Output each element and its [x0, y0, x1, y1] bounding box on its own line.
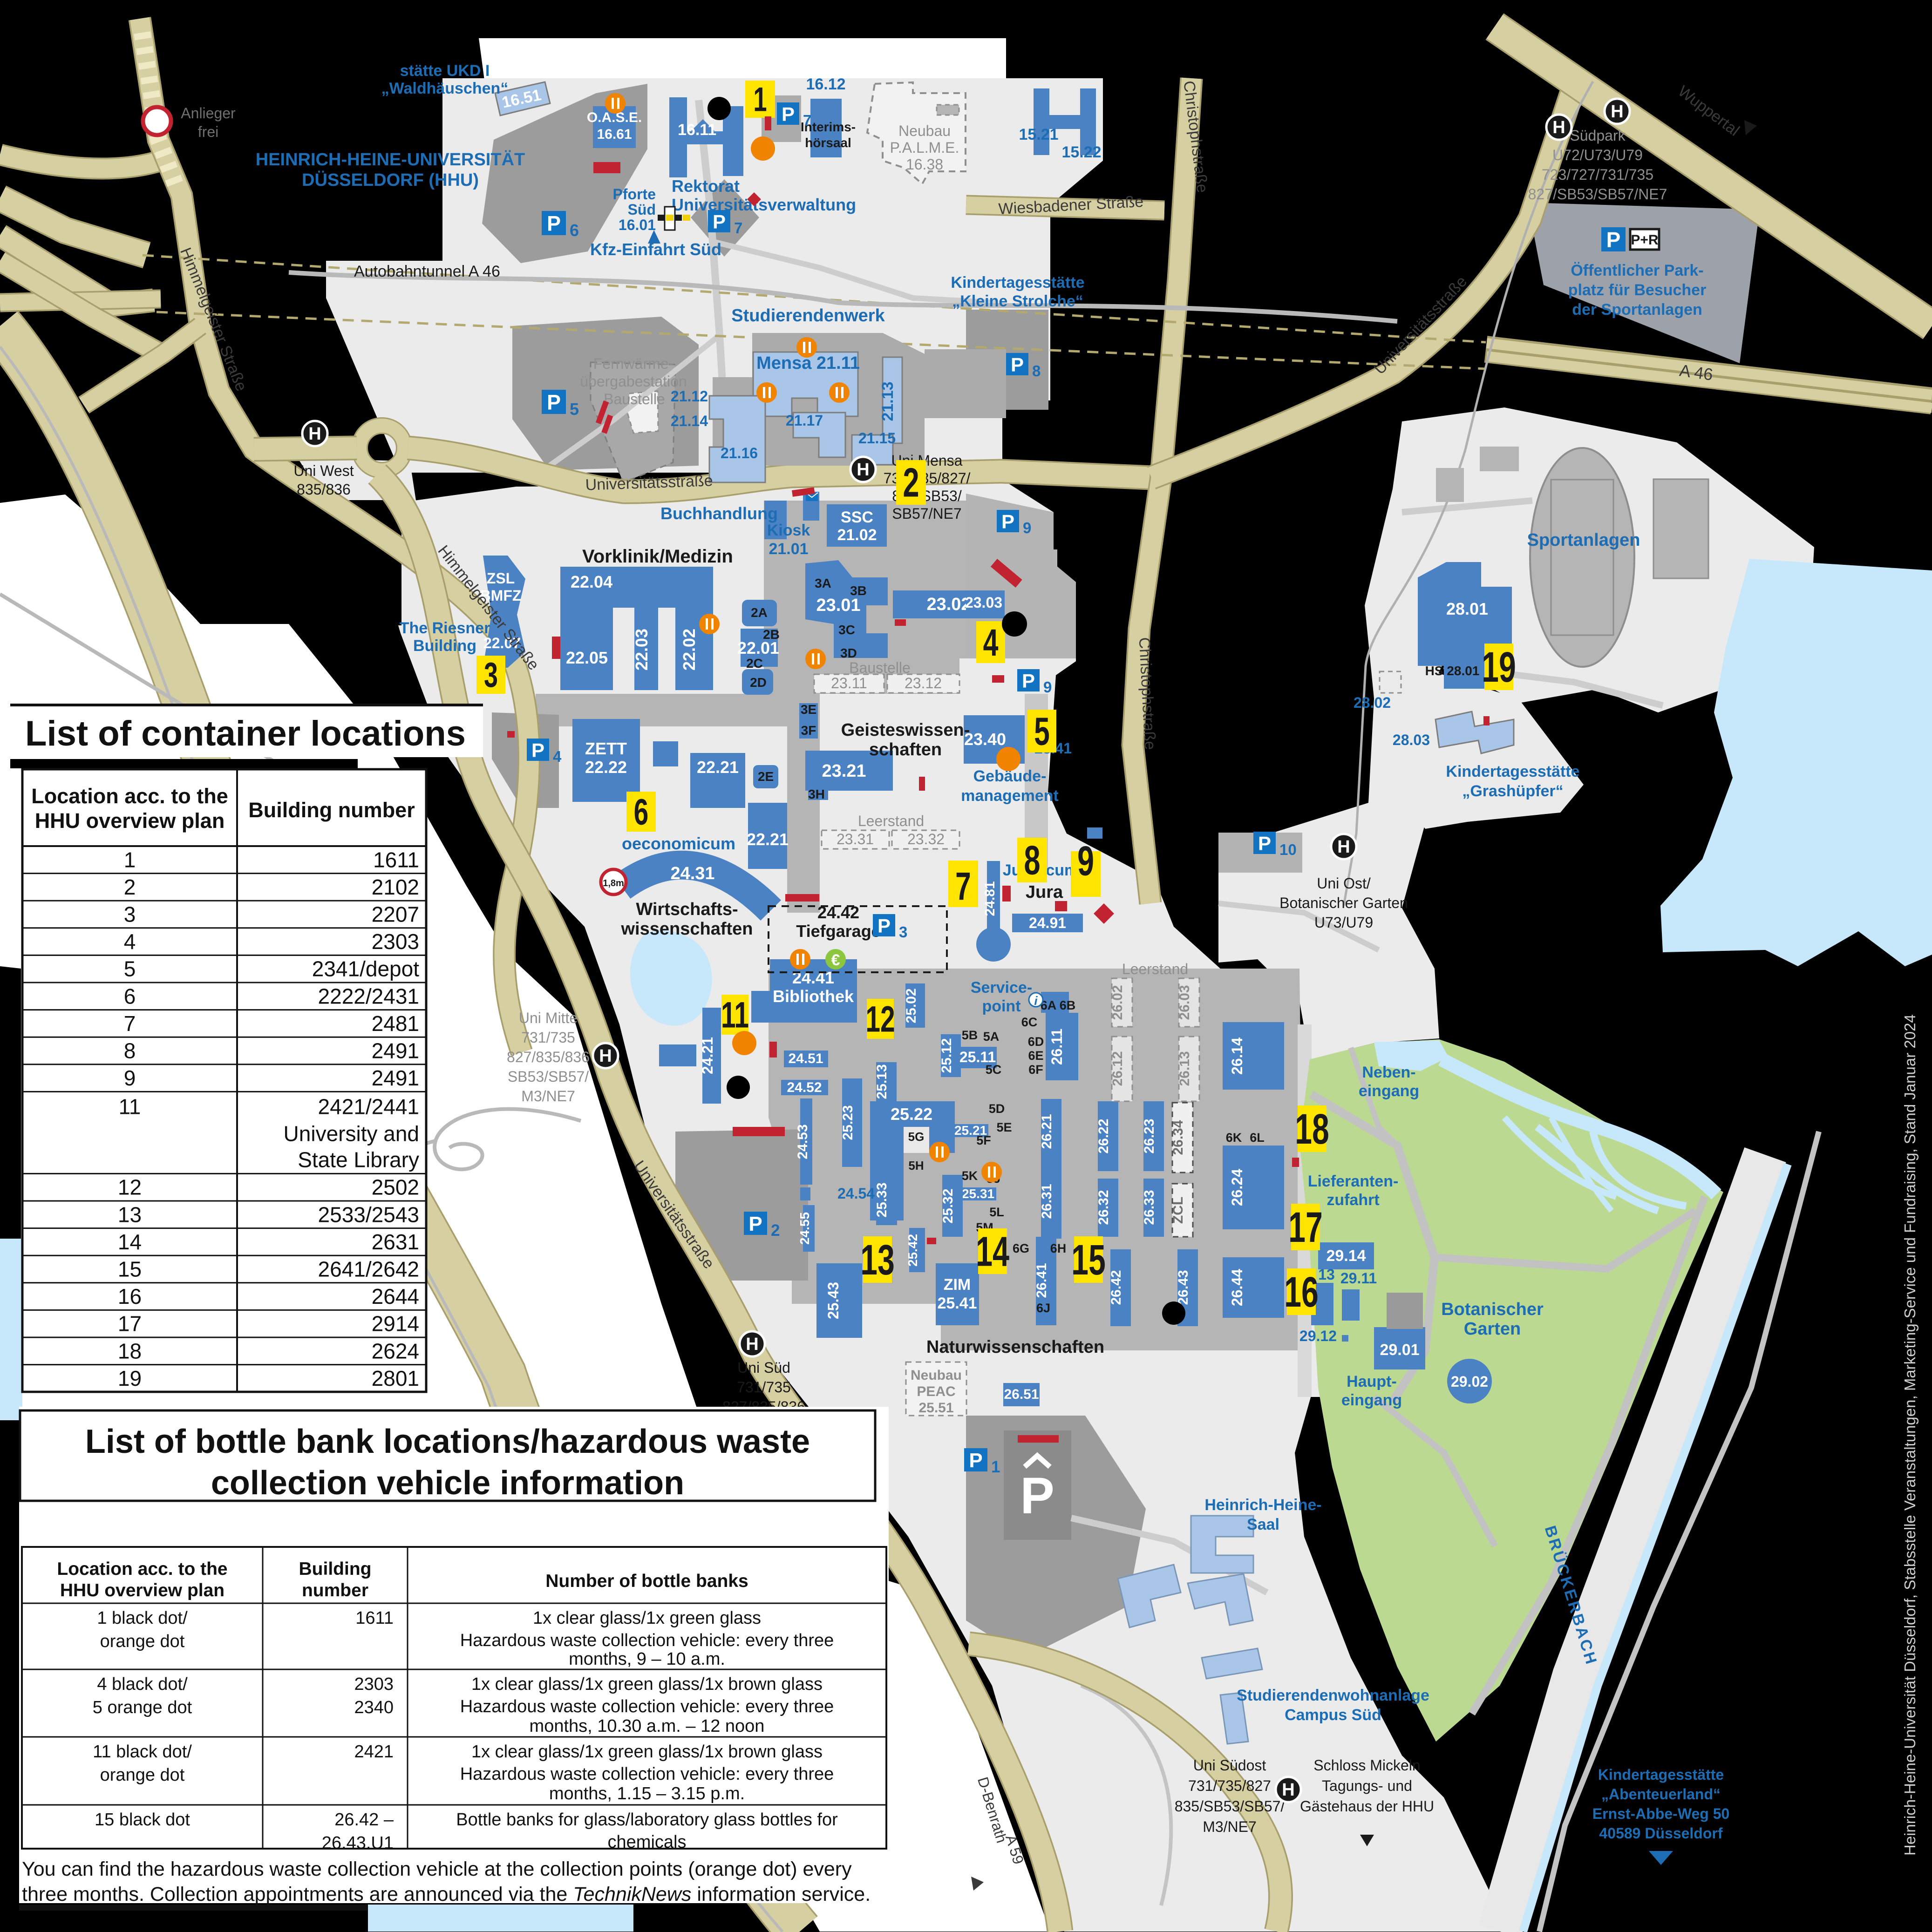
svg-text:16.12: 16.12: [806, 75, 845, 93]
svg-text:14: 14: [118, 1230, 142, 1254]
svg-text:P+R: P+R: [1631, 232, 1659, 248]
svg-text:3: 3: [484, 656, 498, 695]
svg-text:9: 9: [1023, 519, 1031, 536]
svg-text:6: 6: [124, 984, 136, 1008]
svg-text:731/735: 731/735: [737, 1379, 791, 1396]
svg-text:P: P: [969, 1449, 982, 1472]
svg-text:827/SB53/SB57/NE7: 827/SB53/SB57/NE7: [1528, 186, 1667, 203]
svg-text:19: 19: [118, 1366, 142, 1390]
svg-text:Neubau: Neubau: [898, 122, 951, 139]
svg-text:H: H: [1552, 118, 1565, 137]
svg-text:University and: University and: [284, 1121, 419, 1146]
svg-text:P: P: [531, 739, 544, 761]
svg-text:21.12: 21.12: [671, 388, 708, 405]
svg-text:2624: 2624: [372, 1339, 419, 1363]
svg-text:6G: 6G: [1013, 1241, 1029, 1255]
svg-text:22.03: 22.03: [632, 629, 651, 671]
svg-text:Naturwissenschaften: Naturwissenschaften: [926, 1337, 1104, 1357]
svg-text:months, 9 – 10 a.m.: months, 9 – 10 a.m.: [569, 1649, 725, 1669]
svg-text:26.43: 26.43: [1176, 1270, 1191, 1305]
svg-text:13: 13: [860, 1235, 895, 1283]
svg-text:3C: 3C: [838, 623, 855, 637]
svg-text:8: 8: [1024, 838, 1040, 884]
svg-text:4: 4: [553, 748, 562, 765]
svg-text:hörsaal: hörsaal: [805, 136, 851, 150]
svg-text:5E: 5E: [996, 1120, 1012, 1134]
svg-text:26.13: 26.13: [1177, 1051, 1192, 1086]
svg-text:2491: 2491: [372, 1039, 419, 1063]
svg-text:H: H: [857, 460, 869, 480]
svg-text:26.14: 26.14: [1229, 1037, 1245, 1075]
svg-text:Tiefgarage: Tiefgarage: [796, 922, 880, 941]
svg-text:21.17: 21.17: [786, 412, 823, 429]
svg-text:1x clear glass/1x green glass: 1x clear glass/1x green glass: [533, 1608, 761, 1628]
svg-text:P.A.L.M.E.: P.A.L.M.E.: [890, 139, 959, 156]
svg-text:Anlieger: Anlieger: [181, 105, 236, 122]
svg-text:12: 12: [865, 998, 895, 1039]
svg-text:Gästehaus der HHU: Gästehaus der HHU: [1300, 1798, 1434, 1815]
svg-text:26.34: 26.34: [1170, 1120, 1186, 1155]
svg-text:21.16: 21.16: [721, 445, 758, 461]
svg-text:23.11: 23.11: [831, 675, 867, 691]
svg-text:oeconomicum: oeconomicum: [622, 834, 735, 853]
svg-text:5K: 5K: [962, 1169, 978, 1183]
svg-text:23.21: 23.21: [822, 761, 866, 781]
svg-text:2644: 2644: [372, 1284, 419, 1308]
svg-text:platz für Besucher: platz für Besucher: [1568, 281, 1707, 299]
svg-text:2C: 2C: [746, 656, 763, 671]
svg-text:14: 14: [976, 1228, 1009, 1275]
svg-text:2: 2: [124, 875, 136, 899]
svg-text:6C: 6C: [1021, 1015, 1038, 1029]
svg-text:Schloss Mickeln: Schloss Mickeln: [1313, 1757, 1420, 1774]
svg-text:P: P: [748, 1213, 762, 1235]
svg-text:9: 9: [1077, 837, 1094, 884]
svg-text:26.32: 26.32: [1096, 1190, 1111, 1225]
svg-text:5L: 5L: [989, 1205, 1004, 1219]
svg-text:„Grashüpfer“: „Grashüpfer“: [1462, 782, 1563, 800]
svg-text:schaften: schaften: [869, 740, 942, 759]
svg-text:28.02: 28.02: [1354, 694, 1391, 711]
svg-text:25.23: 25.23: [840, 1105, 856, 1140]
svg-text:P: P: [1022, 670, 1035, 691]
svg-text:der Sportanlagen: der Sportanlagen: [1572, 301, 1702, 319]
svg-text:23.31: 23.31: [837, 831, 874, 847]
svg-text:Haupt-: Haupt-: [1347, 1373, 1397, 1390]
svg-text:Öffentlicher Park-: Öffentlicher Park-: [1571, 262, 1703, 279]
svg-text:6H: 6H: [1050, 1241, 1067, 1255]
svg-text:21.13: 21.13: [879, 381, 897, 421]
svg-text:HHU overview plan: HHU overview plan: [60, 1580, 224, 1600]
svg-text:„Abenteuerland“: „Abenteuerland“: [1601, 1786, 1721, 1803]
svg-text:6E: 6E: [1028, 1049, 1043, 1063]
svg-text:26.33: 26.33: [1142, 1190, 1157, 1225]
svg-text:2303: 2303: [372, 929, 419, 954]
svg-text:25.51: 25.51: [918, 1400, 953, 1416]
svg-text:2102: 2102: [372, 875, 419, 899]
svg-text:Hazardous waste collection veh: Hazardous waste collection vehicle: ever…: [460, 1764, 834, 1784]
svg-text:H: H: [308, 424, 321, 444]
svg-text:You can find the hazardous was: You can find the hazardous waste collect…: [22, 1858, 852, 1880]
svg-text:7: 7: [803, 112, 811, 129]
svg-text:2914: 2914: [372, 1312, 419, 1336]
svg-text:28.01: 28.01: [1446, 599, 1488, 618]
svg-text:collection vehicle information: collection vehicle information: [211, 1464, 684, 1502]
svg-text:835/SB53/SB57/: 835/SB53/SB57/: [1175, 1798, 1285, 1815]
svg-text:26.02: 26.02: [1110, 985, 1125, 1020]
svg-text:HS 28.01: HS 28.01: [1425, 664, 1480, 678]
svg-text:13: 13: [1318, 1266, 1335, 1283]
svg-text:16.61: 16.61: [597, 127, 632, 142]
svg-text:24.55: 24.55: [797, 1212, 812, 1245]
svg-text:2E: 2E: [758, 769, 774, 784]
svg-text:Kindertagesstätte: Kindertagesstätte: [1446, 763, 1579, 780]
svg-text:orange dot: orange dot: [100, 1765, 185, 1785]
svg-text:Garten: Garten: [1464, 1319, 1521, 1339]
svg-text:2491: 2491: [372, 1066, 419, 1090]
svg-text:19: 19: [1482, 643, 1516, 691]
svg-text:H: H: [746, 1335, 758, 1354]
svg-text:10: 10: [1279, 841, 1297, 858]
svg-text:U72/U73/U79: U72/U73/U79: [1552, 147, 1643, 163]
svg-text:16: 16: [1284, 1268, 1319, 1315]
svg-text:Lieferanten-: Lieferanten-: [1308, 1173, 1399, 1190]
svg-text:2: 2: [771, 1221, 780, 1240]
svg-text:7: 7: [955, 864, 971, 908]
svg-text:P: P: [547, 391, 561, 414]
svg-text:Uni Süd: Uni Süd: [737, 1359, 790, 1376]
svg-text:List of bottle bank locations/: List of bottle bank locations/hazardous …: [85, 1423, 810, 1460]
svg-text:3: 3: [124, 902, 136, 927]
svg-text:3E: 3E: [801, 702, 816, 717]
svg-text:P: P: [782, 103, 795, 125]
svg-text:22.21: 22.21: [747, 830, 789, 849]
svg-text:P: P: [878, 915, 891, 936]
svg-text:21.14: 21.14: [671, 413, 708, 429]
svg-text:8: 8: [124, 1039, 136, 1063]
svg-text:Südpark: Südpark: [1570, 127, 1626, 144]
svg-text:1611: 1611: [373, 847, 419, 872]
svg-text:24.53: 24.53: [795, 1124, 810, 1159]
svg-text:ZCL: ZCL: [1170, 1197, 1186, 1224]
svg-text:Number of bottle banks: Number of bottle banks: [545, 1571, 748, 1591]
svg-text:Tagungs- und: Tagungs- und: [1322, 1777, 1412, 1794]
svg-text:Buchhandlung: Buchhandlung: [660, 504, 778, 523]
svg-text:5A: 5A: [983, 1030, 1000, 1044]
svg-text:26.42 –: 26.42 –: [334, 1810, 394, 1830]
svg-text:M3/NE7: M3/NE7: [1203, 1818, 1257, 1835]
svg-text:11 black dot/: 11 black dot/: [93, 1742, 192, 1762]
svg-text:26.42: 26.42: [1109, 1270, 1124, 1305]
svg-text:3F: 3F: [801, 723, 816, 738]
svg-text:Baustelle: Baustelle: [604, 391, 665, 407]
svg-text:22.01: 22.01: [737, 638, 779, 658]
svg-text:3D: 3D: [840, 646, 857, 660]
svg-text:9: 9: [1043, 678, 1052, 696]
svg-text:25.12: 25.12: [939, 1038, 954, 1073]
svg-text:frei: frei: [198, 123, 218, 140]
svg-text:Süd: Süd: [628, 201, 656, 218]
svg-text:23.03: 23.03: [965, 594, 1002, 611]
svg-text:chemicals: chemicals: [608, 1832, 687, 1852]
svg-text:H: H: [1337, 837, 1350, 857]
svg-text:2421/2441: 2421/2441: [318, 1094, 419, 1119]
svg-text:The Riesner: The Riesner: [400, 619, 490, 637]
svg-text:2222/2431: 2222/2431: [318, 984, 419, 1008]
svg-text:i: i: [1034, 994, 1038, 1008]
svg-text:26.44: 26.44: [1229, 1269, 1245, 1306]
svg-text:15.22: 15.22: [1061, 143, 1101, 161]
svg-text:HHU overview plan: HHU overview plan: [35, 809, 225, 833]
svg-text:18: 18: [118, 1339, 142, 1363]
svg-text:H: H: [1611, 102, 1623, 122]
svg-text:Campus Süd: Campus Süd: [1285, 1706, 1381, 1724]
svg-text:stätte UKD I: stätte UKD I: [400, 62, 490, 80]
svg-text:ZSL: ZSL: [487, 570, 515, 587]
svg-text:6: 6: [634, 791, 649, 832]
svg-text:24.81: 24.81: [982, 881, 998, 916]
svg-text:6B: 6B: [1060, 998, 1076, 1012]
svg-text:2631: 2631: [372, 1230, 419, 1254]
svg-text:22.21: 22.21: [697, 758, 739, 777]
svg-text:24.41: 24.41: [792, 968, 834, 987]
svg-text:wissenschaften: wissenschaften: [621, 919, 753, 939]
svg-text:5F: 5F: [976, 1133, 991, 1147]
svg-text:4 black dot/: 4 black dot/: [97, 1674, 188, 1694]
svg-text:Botanischer Garten: Botanischer Garten: [1279, 895, 1408, 911]
svg-text:Wirtschafts-: Wirtschafts-: [636, 900, 738, 919]
svg-text:H: H: [599, 1046, 612, 1066]
svg-text:1 black dot/: 1 black dot/: [97, 1608, 188, 1628]
svg-text:25.13: 25.13: [874, 1064, 890, 1099]
svg-text:HEINRICH-HEINE-UNIVERSITÄT: HEINRICH-HEINE-UNIVERSITÄT: [256, 149, 525, 169]
svg-text:5: 5: [1034, 710, 1050, 753]
svg-text:21.15: 21.15: [858, 430, 896, 447]
svg-text:2481: 2481: [372, 1011, 419, 1036]
svg-text:Location acc. to the: Location acc. to the: [31, 784, 228, 808]
svg-text:29.14: 29.14: [1326, 1247, 1366, 1265]
svg-text:26.24: 26.24: [1229, 1169, 1245, 1206]
svg-text:25.22: 25.22: [891, 1105, 932, 1124]
svg-text:23.02: 23.02: [926, 595, 971, 614]
svg-text:ZETT: ZETT: [585, 739, 627, 758]
svg-text:5: 5: [124, 957, 136, 981]
svg-text:6F: 6F: [1028, 1063, 1043, 1077]
svg-text:3H: 3H: [808, 787, 825, 801]
svg-text:U73/U79: U73/U79: [1314, 914, 1373, 931]
svg-text:2641/2642: 2641/2642: [318, 1257, 419, 1281]
svg-text:22.05: 22.05: [566, 648, 608, 667]
svg-text:H: H: [1282, 1780, 1294, 1800]
svg-text:11: 11: [721, 994, 749, 1035]
svg-text:24.91: 24.91: [1029, 915, 1066, 931]
svg-text:15.21: 15.21: [1019, 126, 1058, 143]
svg-text:4: 4: [983, 621, 999, 664]
svg-text:SSC: SSC: [841, 508, 873, 526]
svg-text:26.31: 26.31: [1039, 1184, 1054, 1219]
svg-text:16: 16: [118, 1284, 142, 1308]
svg-text:25.33: 25.33: [874, 1182, 890, 1217]
svg-text:Uni Südost: Uni Südost: [1193, 1757, 1266, 1774]
svg-text:Neben-: Neben-: [1362, 1064, 1415, 1081]
svg-text:29.01: 29.01: [1380, 1341, 1419, 1359]
svg-text:18: 18: [1295, 1105, 1329, 1152]
svg-text:835/836: 835/836: [297, 481, 351, 498]
svg-text:Baustelle: Baustelle: [849, 659, 911, 676]
svg-text:6: 6: [570, 221, 579, 240]
svg-text:Leerstand: Leerstand: [1122, 961, 1188, 977]
svg-text:7: 7: [734, 219, 742, 237]
svg-text:management: management: [961, 787, 1059, 805]
svg-text:22.22: 22.22: [585, 758, 627, 777]
svg-text:8: 8: [1032, 362, 1041, 380]
svg-text:5: 5: [570, 400, 579, 419]
svg-text:24.21: 24.21: [699, 1037, 716, 1074]
svg-text:Studierendenwerk: Studierendenwerk: [731, 306, 885, 325]
svg-text:15: 15: [1071, 1235, 1106, 1283]
svg-text:25.42: 25.42: [905, 1234, 920, 1267]
svg-text:DÜSSELDORF (HHU): DÜSSELDORF (HHU): [302, 170, 479, 190]
svg-text:26.03: 26.03: [1177, 985, 1192, 1020]
svg-text:2341/depot: 2341/depot: [312, 957, 419, 981]
svg-text:4: 4: [124, 929, 136, 954]
svg-text:24.54: 24.54: [837, 1185, 875, 1202]
svg-text:25.41: 25.41: [937, 1295, 977, 1312]
svg-text:Uni Ost/: Uni Ost/: [1317, 875, 1371, 892]
svg-text:6J: 6J: [1036, 1301, 1050, 1315]
svg-text:2502: 2502: [372, 1175, 419, 1200]
svg-text:Geisteswissen-: Geisteswissen-: [841, 720, 970, 740]
svg-text:13: 13: [118, 1202, 142, 1227]
svg-text:3A: 3A: [815, 576, 831, 590]
svg-text:Botanischer: Botanischer: [1441, 1300, 1544, 1319]
svg-text:Pforte: Pforte: [613, 186, 656, 203]
svg-text:731/735: 731/735: [521, 1029, 575, 1046]
svg-text:5 orange dot: 5 orange dot: [93, 1698, 192, 1717]
svg-text:months, 1.15 – 3.15 p.m.: months, 1.15 – 3.15 p.m.: [549, 1784, 745, 1803]
svg-text:Kindertagesstätte: Kindertagesstätte: [1598, 1766, 1724, 1783]
svg-text:Leerstand: Leerstand: [858, 813, 924, 829]
svg-text:15 black dot: 15 black dot: [95, 1810, 190, 1830]
svg-text:Rektorat: Rektorat: [672, 176, 740, 196]
svg-text:15: 15: [118, 1257, 142, 1281]
svg-text:24.42: 24.42: [817, 903, 859, 922]
svg-text:2801: 2801: [372, 1366, 419, 1390]
svg-text:M3/NE7: M3/NE7: [521, 1088, 575, 1105]
svg-text:ZIM: ZIM: [944, 1276, 971, 1294]
svg-text:eingang: eingang: [1359, 1082, 1419, 1100]
svg-text:1x clear glass/1x green glass/: 1x clear glass/1x green glass/1x brown g…: [471, 1674, 823, 1694]
svg-text:25.31: 25.31: [962, 1186, 994, 1201]
svg-text:P: P: [1606, 228, 1621, 252]
svg-text:1,8m: 1,8m: [603, 878, 624, 888]
svg-text:„Kleine Strolche“: „Kleine Strolche“: [952, 292, 1083, 310]
svg-text:26.11: 26.11: [1048, 1029, 1065, 1065]
svg-text:SB57/NE7: SB57/NE7: [892, 505, 961, 522]
svg-text:2340: 2340: [354, 1698, 394, 1717]
svg-text:Service-: Service-: [971, 979, 1032, 997]
svg-text:22.02: 22.02: [680, 629, 699, 671]
svg-text:2: 2: [903, 461, 919, 506]
svg-text:Hazardous waste collection veh: Hazardous waste collection vehicle: ever…: [460, 1631, 834, 1650]
svg-text:P: P: [1020, 1467, 1054, 1525]
svg-text:731/735/827: 731/735/827: [1188, 1777, 1271, 1794]
svg-text:7: 7: [124, 1011, 136, 1036]
svg-text:übergabestation: übergabestation: [580, 373, 687, 390]
svg-text:6L: 6L: [1250, 1131, 1265, 1145]
svg-text:29.02: 29.02: [1451, 1373, 1488, 1390]
svg-text:17: 17: [118, 1312, 142, 1336]
svg-text:23.40: 23.40: [964, 730, 1006, 749]
svg-text:2421: 2421: [354, 1742, 394, 1762]
svg-text:Saal: Saal: [1247, 1516, 1279, 1533]
svg-text:Uni West: Uni West: [293, 462, 354, 479]
svg-text:25.02: 25.02: [904, 988, 919, 1023]
svg-text:26.51: 26.51: [1004, 1387, 1039, 1402]
svg-text:1x clear glass/1x green glass/: 1x clear glass/1x green glass/1x brown g…: [471, 1742, 823, 1762]
svg-text:Building: Building: [299, 1559, 372, 1579]
svg-text:P: P: [1011, 353, 1024, 375]
svg-text:26.22: 26.22: [1096, 1119, 1111, 1153]
svg-text:State Library: State Library: [298, 1147, 419, 1172]
svg-text:orange dot: orange dot: [100, 1632, 185, 1651]
svg-text:Ernst-Abbe-Weg 50: Ernst-Abbe-Weg 50: [1592, 1805, 1730, 1822]
svg-text:16.01: 16.01: [619, 217, 656, 233]
svg-text:5B: 5B: [962, 1028, 978, 1042]
svg-text:40589 Düsseldorf: 40589 Düsseldorf: [1599, 1825, 1722, 1842]
svg-text:Bottle banks for glass/laborat: Bottle banks for glass/laboratory glass …: [456, 1810, 838, 1830]
svg-text:Vorklinik/Medizin: Vorklinik/Medizin: [582, 546, 733, 567]
svg-text:P: P: [1001, 510, 1014, 532]
svg-text:Neubau: Neubau: [911, 1368, 962, 1383]
svg-text:2303: 2303: [354, 1674, 394, 1694]
svg-text:827/835/836: 827/835/836: [507, 1049, 590, 1065]
svg-text:25.32: 25.32: [940, 1188, 956, 1223]
svg-text:Heinrich-Heine-Universität Düs: Heinrich-Heine-Universität Düsseldorf, S…: [1901, 1014, 1918, 1856]
svg-text:List of container locations: List of container locations: [25, 714, 466, 753]
svg-text:5H: 5H: [908, 1159, 924, 1173]
svg-text:17: 17: [1288, 1203, 1323, 1251]
svg-text:2207: 2207: [372, 902, 419, 927]
svg-text:€: €: [831, 951, 840, 969]
svg-text:Bibliothek: Bibliothek: [773, 987, 854, 1006]
svg-text:2533/2543: 2533/2543: [318, 1202, 419, 1227]
svg-text:16.11: 16.11: [678, 121, 716, 139]
svg-text:1611: 1611: [355, 1608, 394, 1628]
svg-text:723/727/731/735: 723/727/731/735: [1542, 166, 1653, 183]
svg-text:Universitätsverwaltung: Universitätsverwaltung: [672, 195, 856, 214]
svg-text:Location acc. to the: Location acc. to the: [57, 1559, 227, 1579]
svg-text:26.12: 26.12: [1110, 1051, 1125, 1086]
svg-text:P: P: [713, 210, 726, 232]
svg-text:1: 1: [753, 81, 767, 118]
svg-text:26.41: 26.41: [1034, 1263, 1049, 1298]
svg-text:3: 3: [899, 923, 907, 941]
svg-text:26.43.U1: 26.43.U1: [322, 1833, 394, 1853]
svg-text:5G: 5G: [908, 1130, 925, 1144]
svg-text:Sportanlagen: Sportanlagen: [1527, 530, 1640, 550]
svg-text:1: 1: [991, 1458, 1000, 1476]
svg-text:Fernwärme-: Fernwärme-: [593, 355, 673, 372]
svg-text:Heinrich-Heine-: Heinrich-Heine-: [1204, 1496, 1321, 1514]
svg-text:Kiosk: Kiosk: [767, 522, 810, 539]
svg-text:zufahrt: zufahrt: [1327, 1191, 1379, 1209]
svg-text:1: 1: [124, 847, 136, 872]
svg-text:24.52: 24.52: [787, 1080, 822, 1095]
svg-text:21.01: 21.01: [769, 540, 808, 558]
svg-text:Building: Building: [413, 637, 476, 655]
svg-text:Kindertagesstätte: Kindertagesstätte: [951, 274, 1084, 291]
